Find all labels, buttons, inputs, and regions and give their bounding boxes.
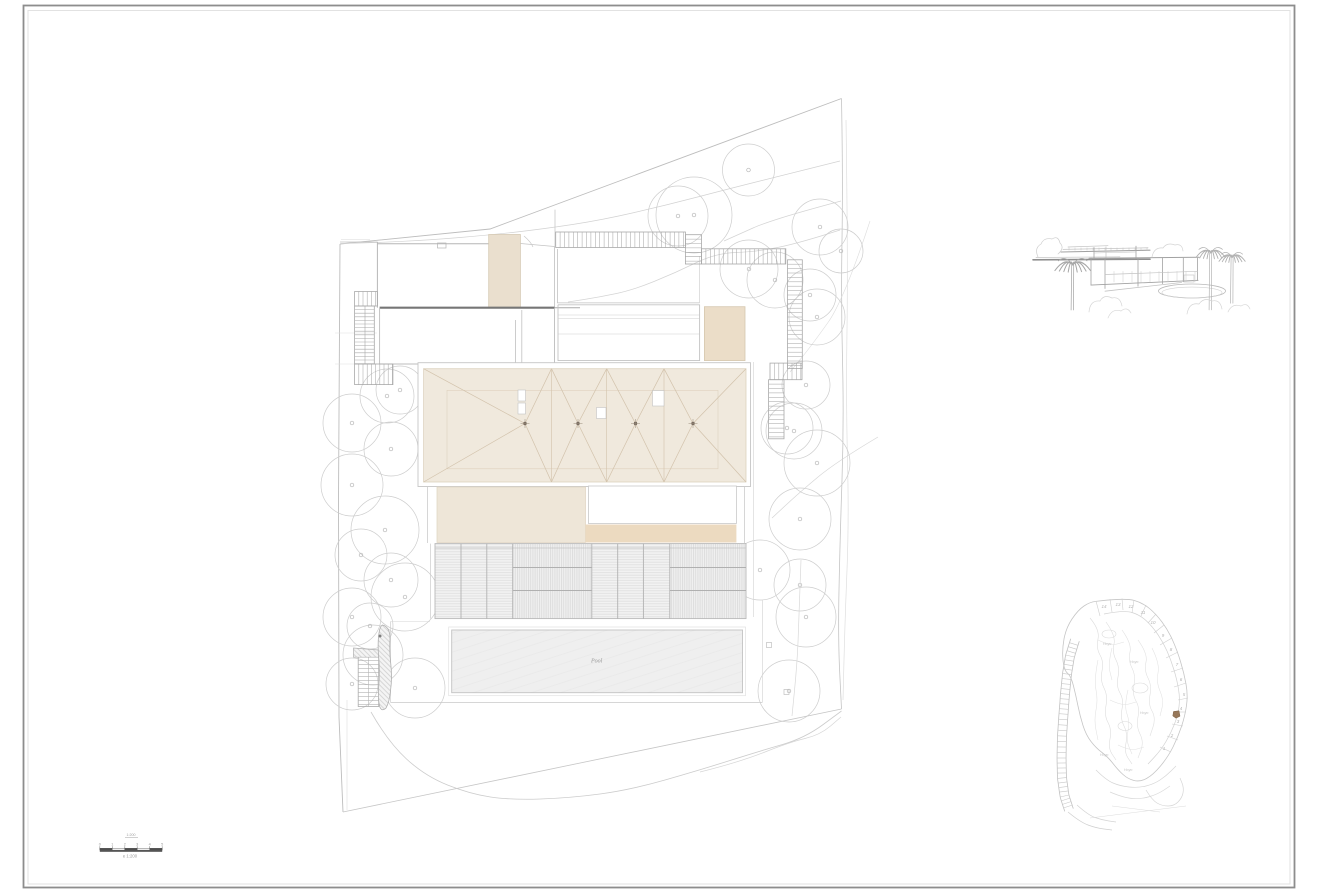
svg-text:5: 5: [161, 843, 163, 847]
svg-text:13: 13: [1115, 602, 1121, 607]
svg-text:0: 0: [99, 843, 101, 847]
svg-text:Hoyo: Hoyo: [1124, 768, 1132, 772]
svg-text:14: 14: [1101, 604, 1107, 609]
svg-text:12: 12: [1128, 604, 1134, 609]
svg-text:Hoyo: Hoyo: [1140, 711, 1148, 715]
svg-text:11: 11: [1141, 610, 1146, 615]
svg-text:Hoyo: Hoyo: [1103, 642, 1111, 646]
svg-text:3: 3: [136, 843, 138, 847]
svg-text:4: 4: [149, 843, 151, 847]
svg-text:e 1:200: e 1:200: [123, 853, 138, 858]
svg-text:1: 1: [111, 843, 113, 847]
svg-text:10: 10: [1150, 620, 1156, 625]
svg-text:2: 2: [1170, 733, 1174, 738]
svg-text:Hoyo: Hoyo: [1130, 660, 1138, 664]
svg-text:2: 2: [124, 843, 126, 847]
svg-text:Pool: Pool: [590, 659, 603, 665]
svg-text:Hoyo: Hoyo: [1100, 753, 1108, 757]
svg-text:1:200: 1:200: [127, 833, 136, 837]
